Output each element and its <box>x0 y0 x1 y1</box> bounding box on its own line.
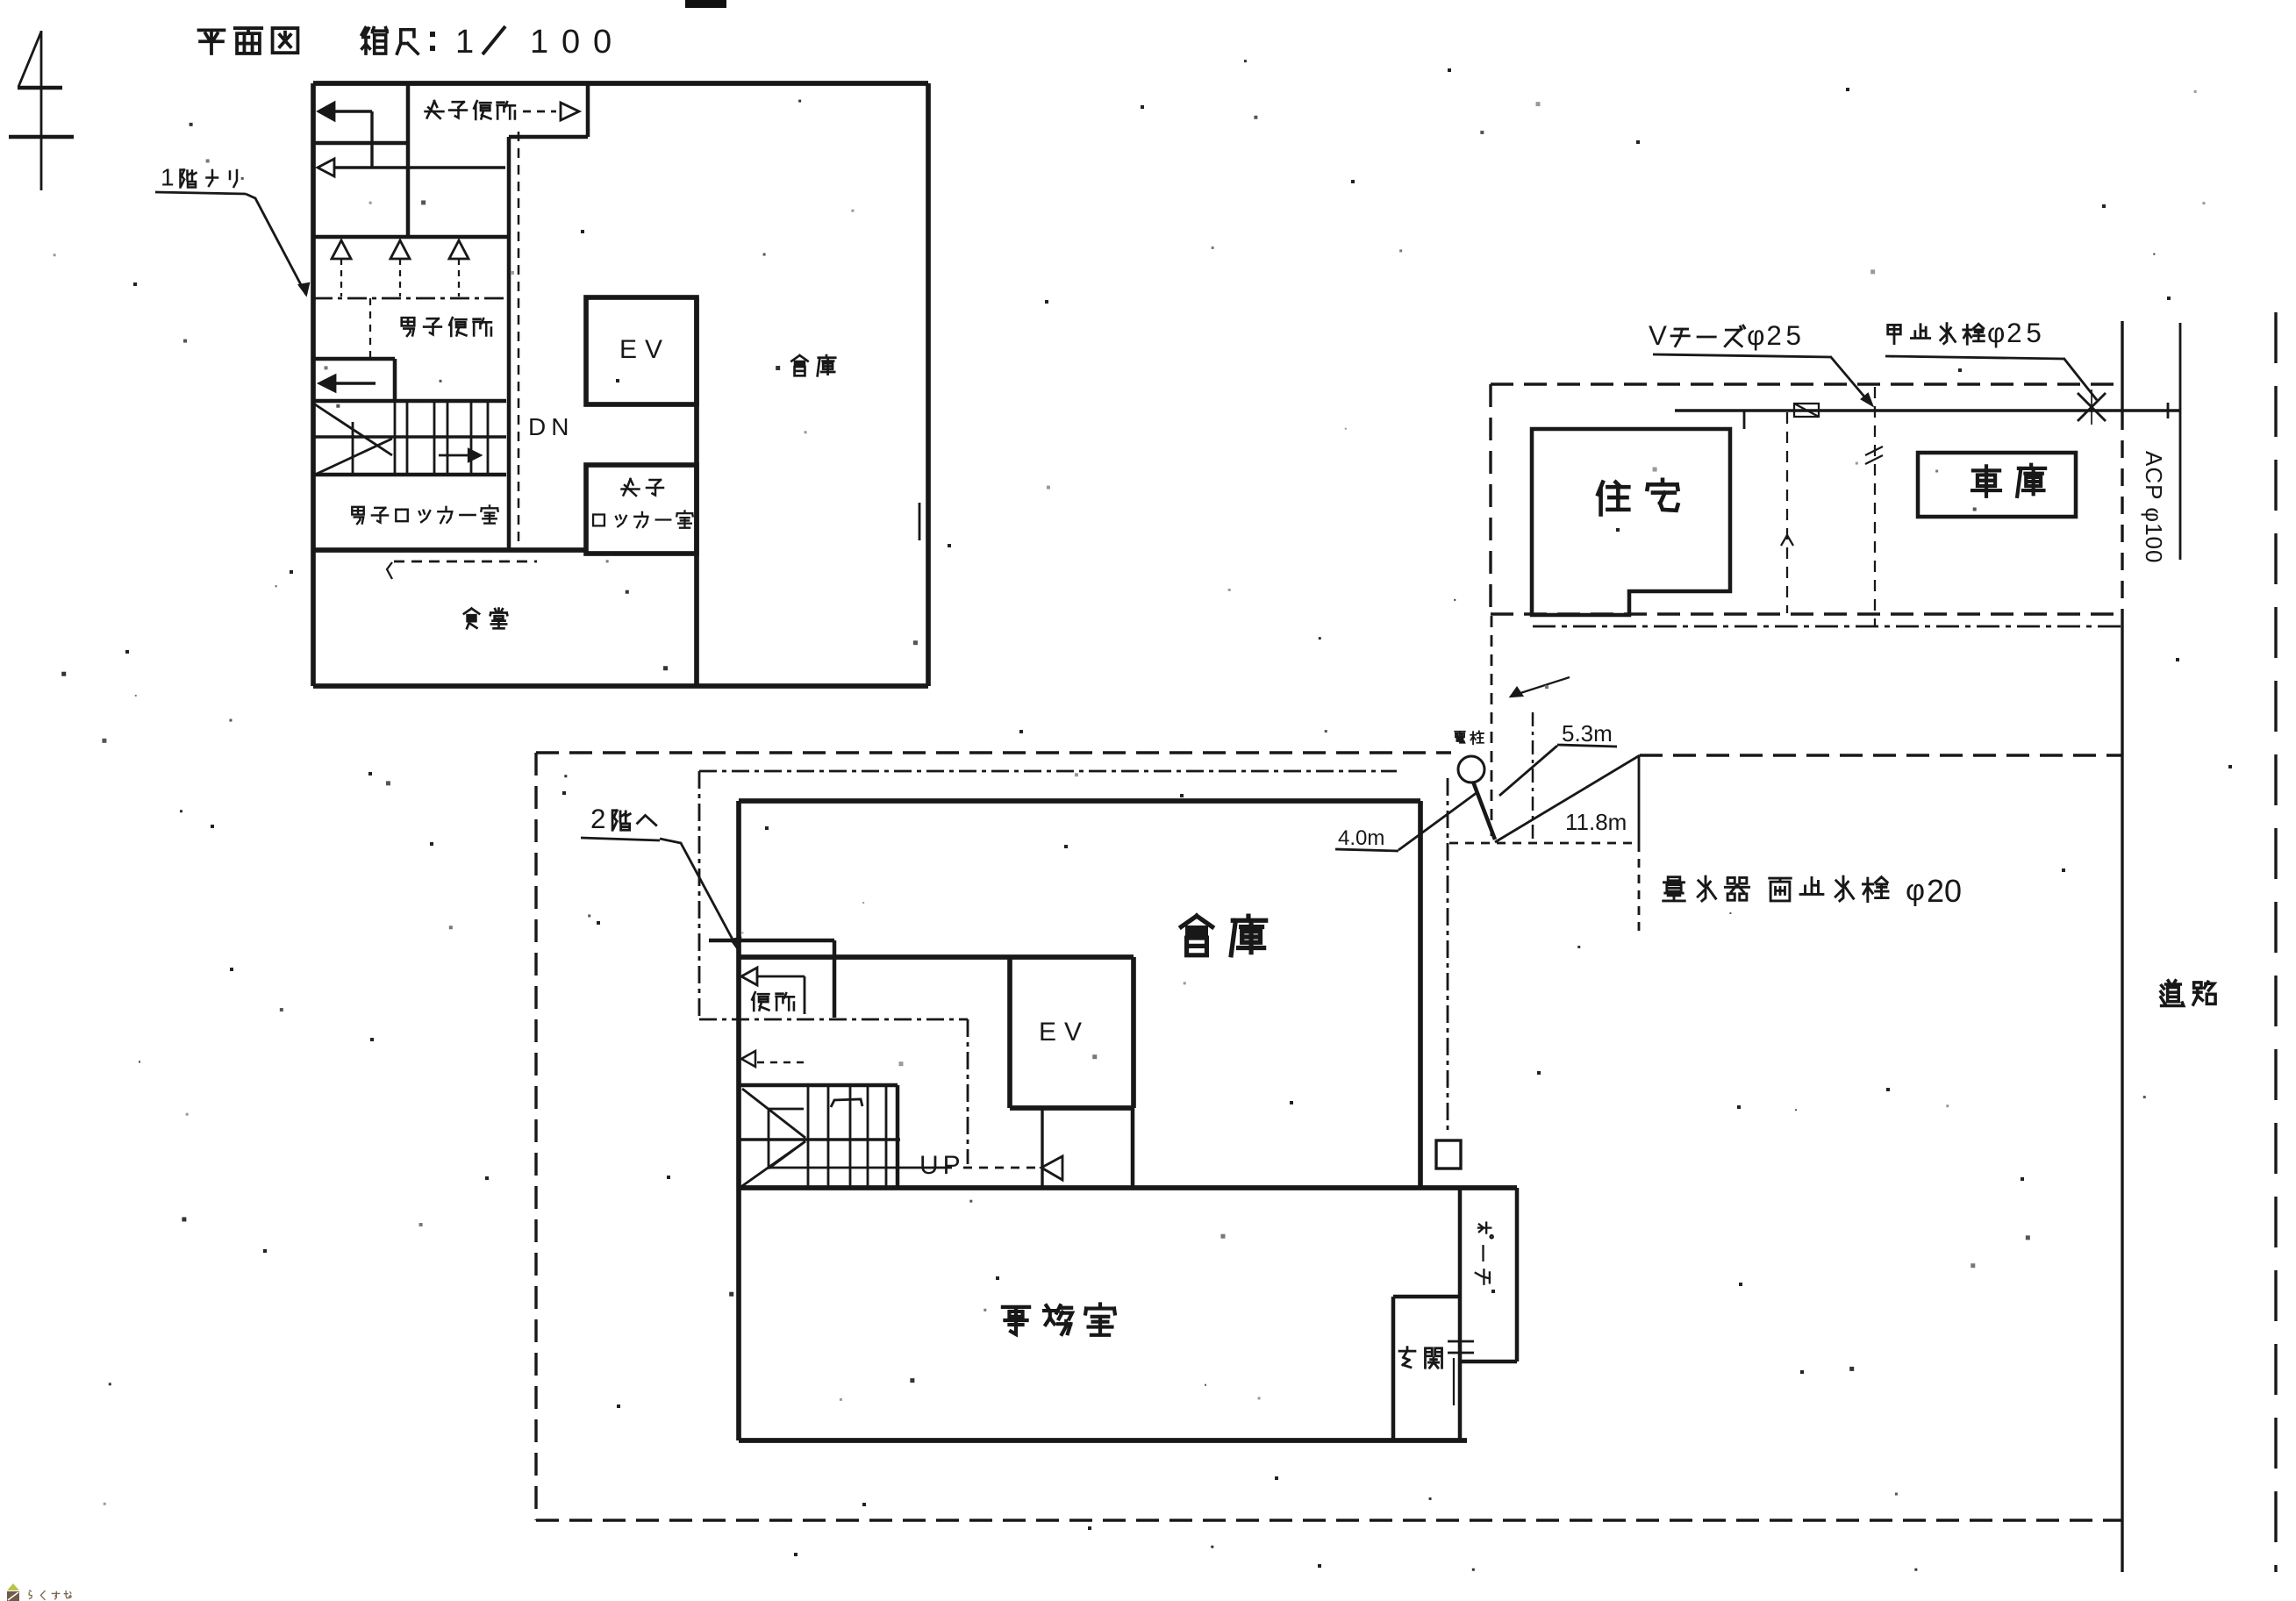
svg-text:4.0m: 4.0m <box>1338 826 1384 850</box>
svg-text:EV: EV <box>1039 1018 1090 1047</box>
svg-text:2: 2 <box>590 804 605 834</box>
svg-text:UP: UP <box>919 1151 965 1180</box>
svg-text:1: 1 <box>455 24 474 61</box>
svg-text:1: 1 <box>530 24 548 61</box>
svg-text:φ: φ <box>1987 318 2005 348</box>
svg-text:EV: EV <box>619 335 670 364</box>
svg-text:11.8m: 11.8m <box>1565 809 1627 835</box>
svg-text:2: 2 <box>1766 320 1781 351</box>
svg-text:φ: φ <box>1747 320 1764 351</box>
svg-text:5.3m: 5.3m <box>1562 720 1613 747</box>
svg-text:1: 1 <box>161 164 175 191</box>
svg-text:V: V <box>1649 320 1667 351</box>
svg-text:2: 2 <box>2006 318 2021 348</box>
svg-text:5: 5 <box>1785 320 1800 351</box>
svg-text:5: 5 <box>2026 318 2041 348</box>
svg-text:0: 0 <box>561 24 580 61</box>
svg-text:0: 0 <box>593 24 612 61</box>
svg-text:20: 20 <box>1927 873 1962 909</box>
svg-text:φ: φ <box>1906 874 1925 907</box>
svg-text:ACP φ100: ACP φ100 <box>2141 451 2167 563</box>
svg-text:DN: DN <box>528 413 574 440</box>
